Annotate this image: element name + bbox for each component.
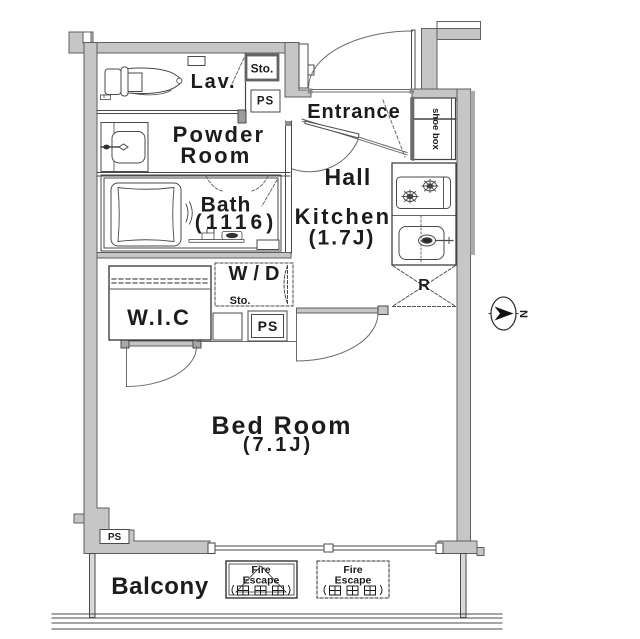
svg-text:Kitchen: Kitchen [295,204,392,229]
svg-text:PS: PS [257,96,274,108]
svg-text:PS: PS [108,532,122,543]
svg-text:Entrance: Entrance [307,101,401,123]
svg-text:(1116): (1116) [195,211,277,234]
svg-text:Sto.: Sto. [230,295,251,307]
svg-text:Balcony: Balcony [111,573,209,600]
svg-text:Escape: Escape [335,575,372,587]
svg-text:W/D: W/D [229,263,286,285]
svg-text:PS: PS [258,318,279,334]
svg-text:(7.1J): (7.1J) [243,434,313,456]
svg-text:Sto.: Sto. [251,62,274,76]
svg-text:N: N [517,310,529,318]
svg-text:W.I.C: W.I.C [127,305,191,330]
svg-text:Room: Room [180,143,251,168]
svg-text:(1.7J): (1.7J) [309,227,376,250]
svg-text:Hall: Hall [325,164,372,190]
svg-text:Escape: Escape [243,575,280,587]
svg-text:Lav.: Lav. [191,71,237,93]
svg-text:shoe box: shoe box [430,108,441,150]
svg-text:R: R [418,277,430,294]
